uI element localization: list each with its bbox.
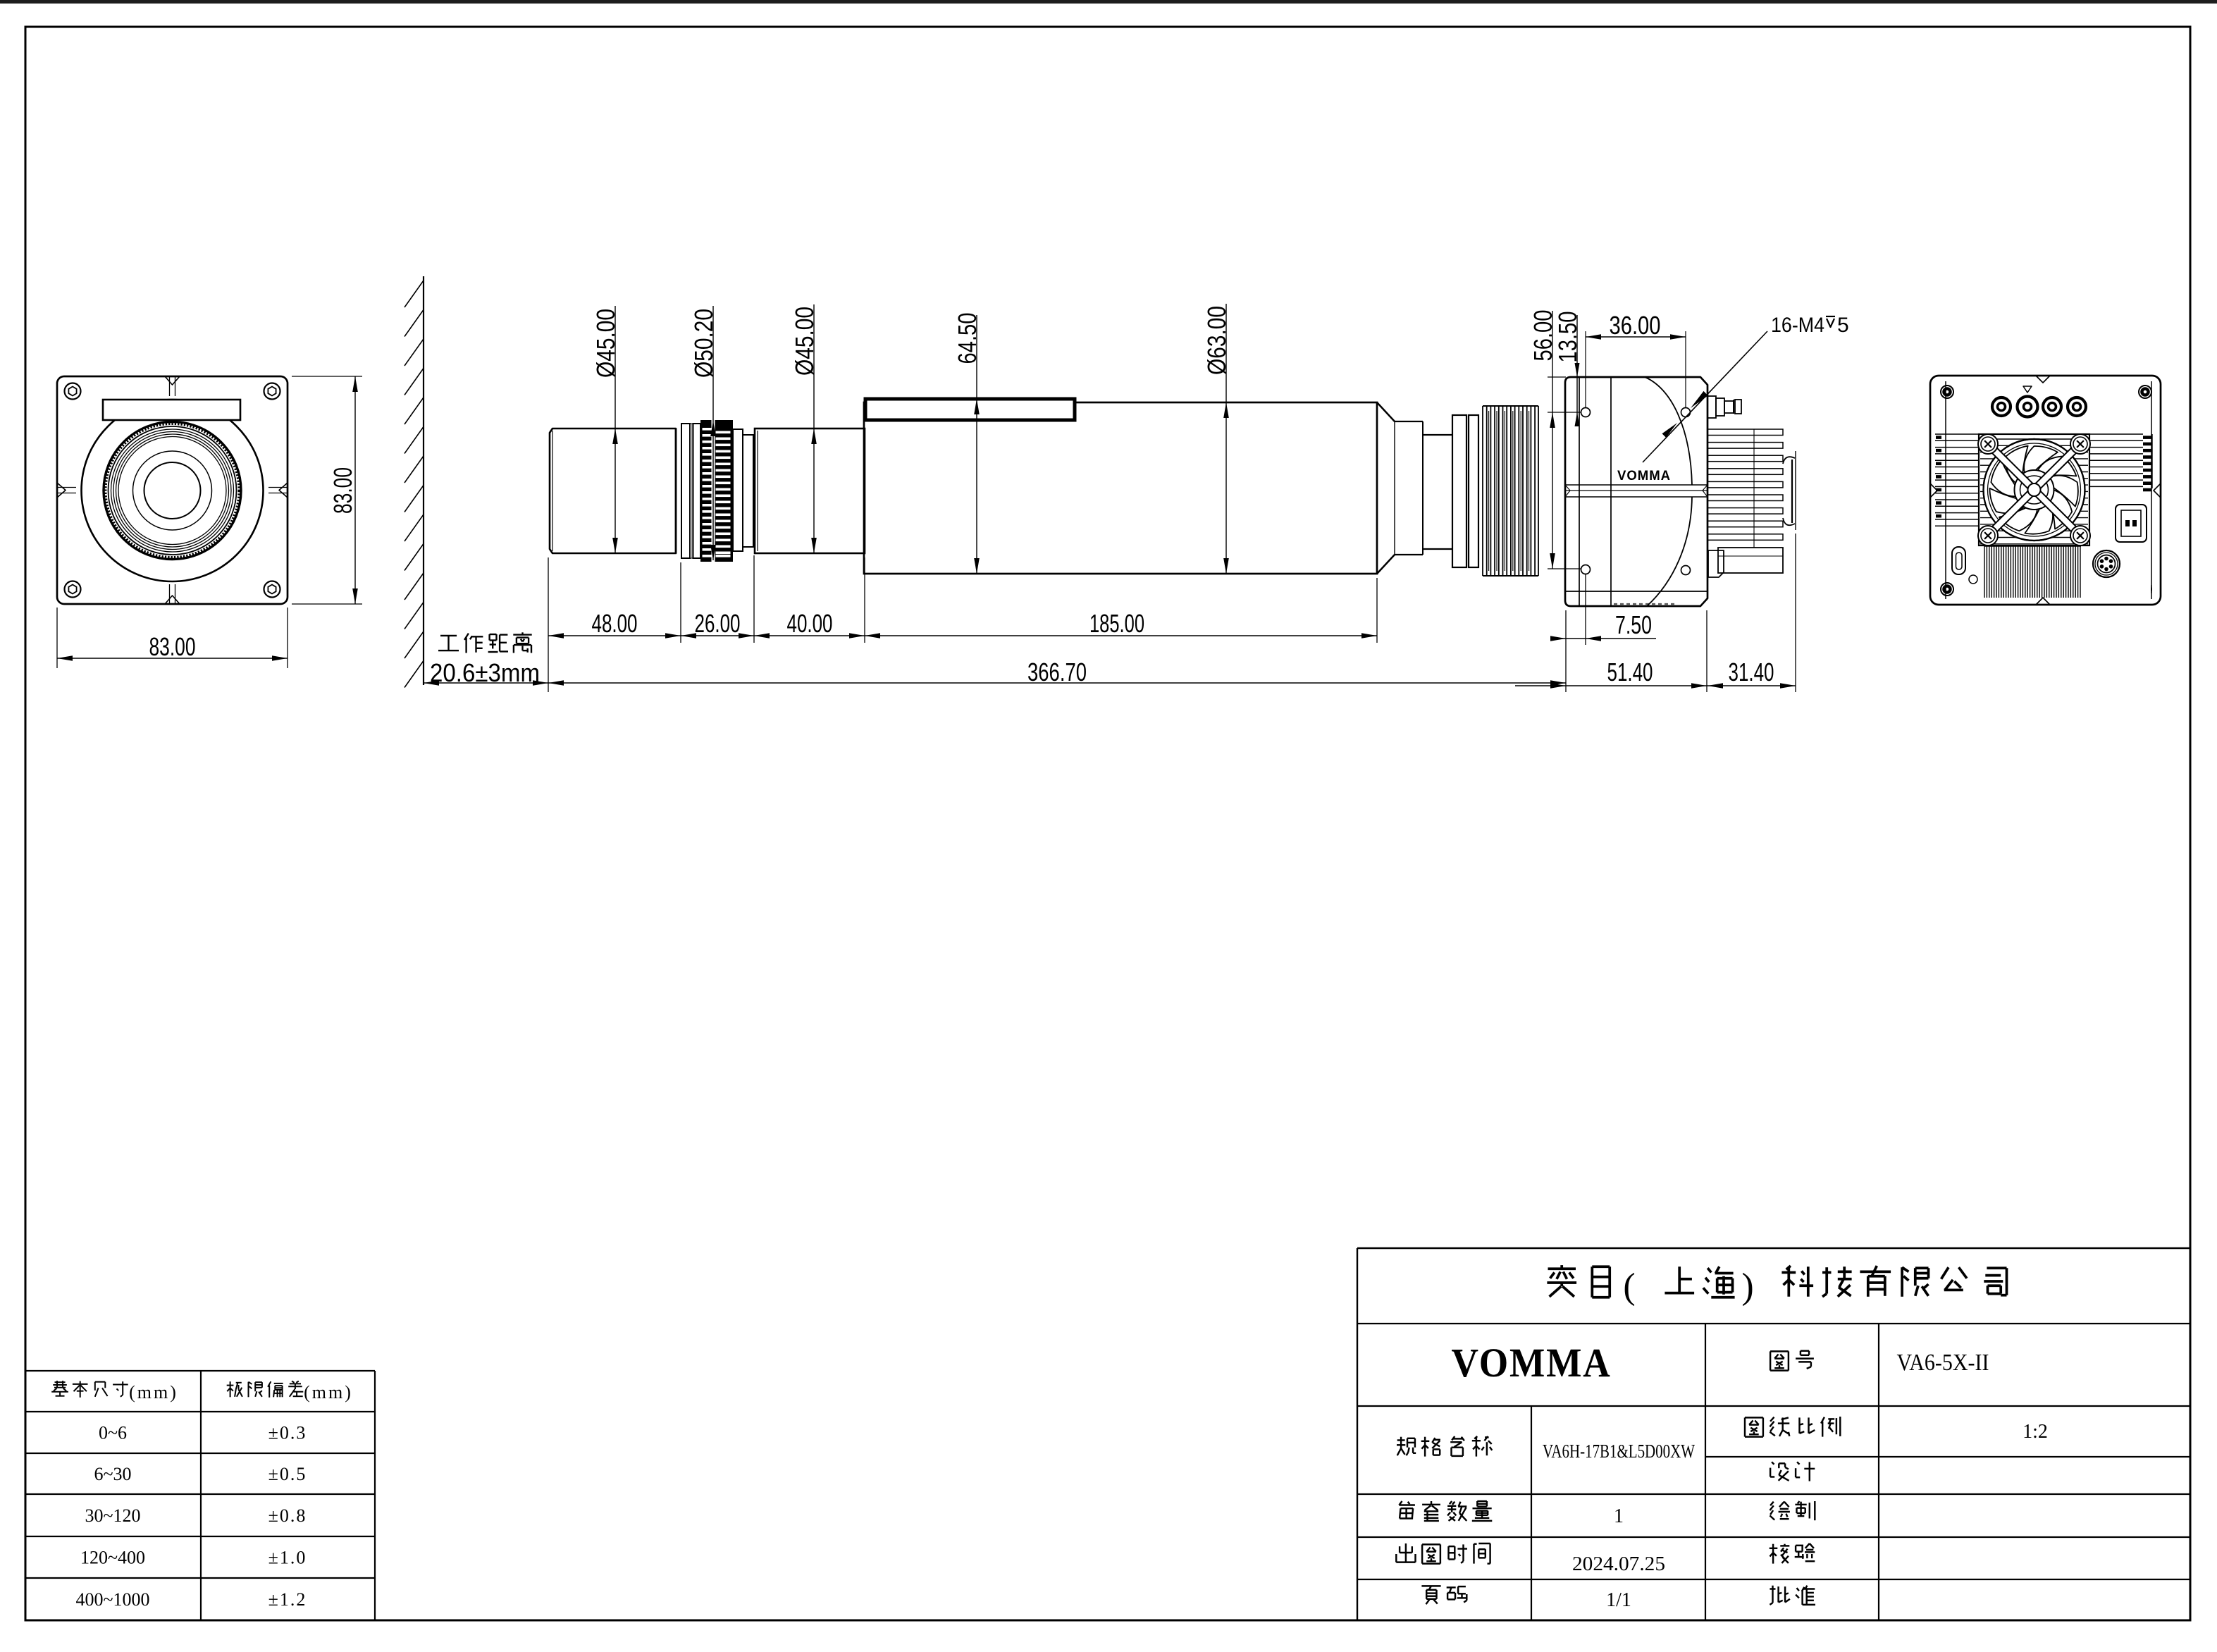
svg-text:20.6±3mm: 20.6±3mm bbox=[430, 658, 540, 687]
svg-text:48.00: 48.00 bbox=[592, 609, 638, 638]
svg-text:64.50: 64.50 bbox=[953, 313, 982, 364]
svg-text:40.00: 40.00 bbox=[787, 609, 833, 638]
svg-text:VOMMA: VOMMA bbox=[1452, 1340, 1612, 1386]
svg-text:VA6H-17B1&L5D00XW: VA6H-17B1&L5D00XW bbox=[1543, 1441, 1695, 1462]
svg-text:(mm): (mm) bbox=[304, 1382, 353, 1403]
svg-text:36.00: 36.00 bbox=[1610, 311, 1661, 340]
svg-text:31.40: 31.40 bbox=[1729, 658, 1774, 686]
svg-text:Ø45.00: Ø45.00 bbox=[591, 309, 620, 378]
svg-text:1/1: 1/1 bbox=[1606, 1589, 1631, 1611]
svg-text:120~400: 120~400 bbox=[80, 1548, 145, 1568]
svg-text:): ) bbox=[1741, 1266, 1753, 1307]
svg-text:366.70: 366.70 bbox=[1027, 658, 1087, 686]
svg-text:185.00: 185.00 bbox=[1089, 609, 1144, 638]
svg-text:±0.3: ±0.3 bbox=[268, 1423, 307, 1443]
svg-text:VA6-5X-II: VA6-5X-II bbox=[1897, 1350, 1989, 1376]
svg-text:1: 1 bbox=[1614, 1505, 1624, 1527]
svg-text:400~1000: 400~1000 bbox=[75, 1589, 149, 1610]
svg-text:±1.0: ±1.0 bbox=[268, 1548, 307, 1568]
svg-text:26.00: 26.00 bbox=[695, 609, 741, 638]
svg-text:±0.8: ±0.8 bbox=[268, 1505, 307, 1526]
svg-text:7.50: 7.50 bbox=[1615, 610, 1652, 639]
svg-text:VOMMA: VOMMA bbox=[1617, 469, 1671, 483]
svg-text:Ø63.00: Ø63.00 bbox=[1202, 306, 1231, 375]
svg-text:2024.07.25: 2024.07.25 bbox=[1572, 1553, 1665, 1575]
svg-text:51.40: 51.40 bbox=[1607, 658, 1653, 686]
svg-text:16-M4: 16-M4 bbox=[1771, 314, 1824, 337]
svg-text:30~120: 30~120 bbox=[85, 1505, 140, 1526]
svg-text:(: ( bbox=[1623, 1266, 1635, 1307]
svg-text:1:2: 1:2 bbox=[2023, 1421, 2048, 1443]
svg-text:6~30: 6~30 bbox=[94, 1464, 131, 1484]
svg-text:±0.5: ±0.5 bbox=[268, 1464, 307, 1484]
svg-text:Ø50.20: Ø50.20 bbox=[689, 309, 718, 378]
svg-text:13.50: 13.50 bbox=[1553, 312, 1582, 363]
svg-text:(mm): (mm) bbox=[129, 1382, 178, 1403]
svg-text:±1.2: ±1.2 bbox=[268, 1589, 307, 1610]
svg-text:Ø45.00: Ø45.00 bbox=[790, 307, 819, 376]
svg-text:5: 5 bbox=[1837, 314, 1849, 337]
svg-text:0~6: 0~6 bbox=[99, 1423, 127, 1443]
svg-text:83.00: 83.00 bbox=[328, 467, 357, 514]
svg-text:83.00: 83.00 bbox=[149, 632, 196, 661]
